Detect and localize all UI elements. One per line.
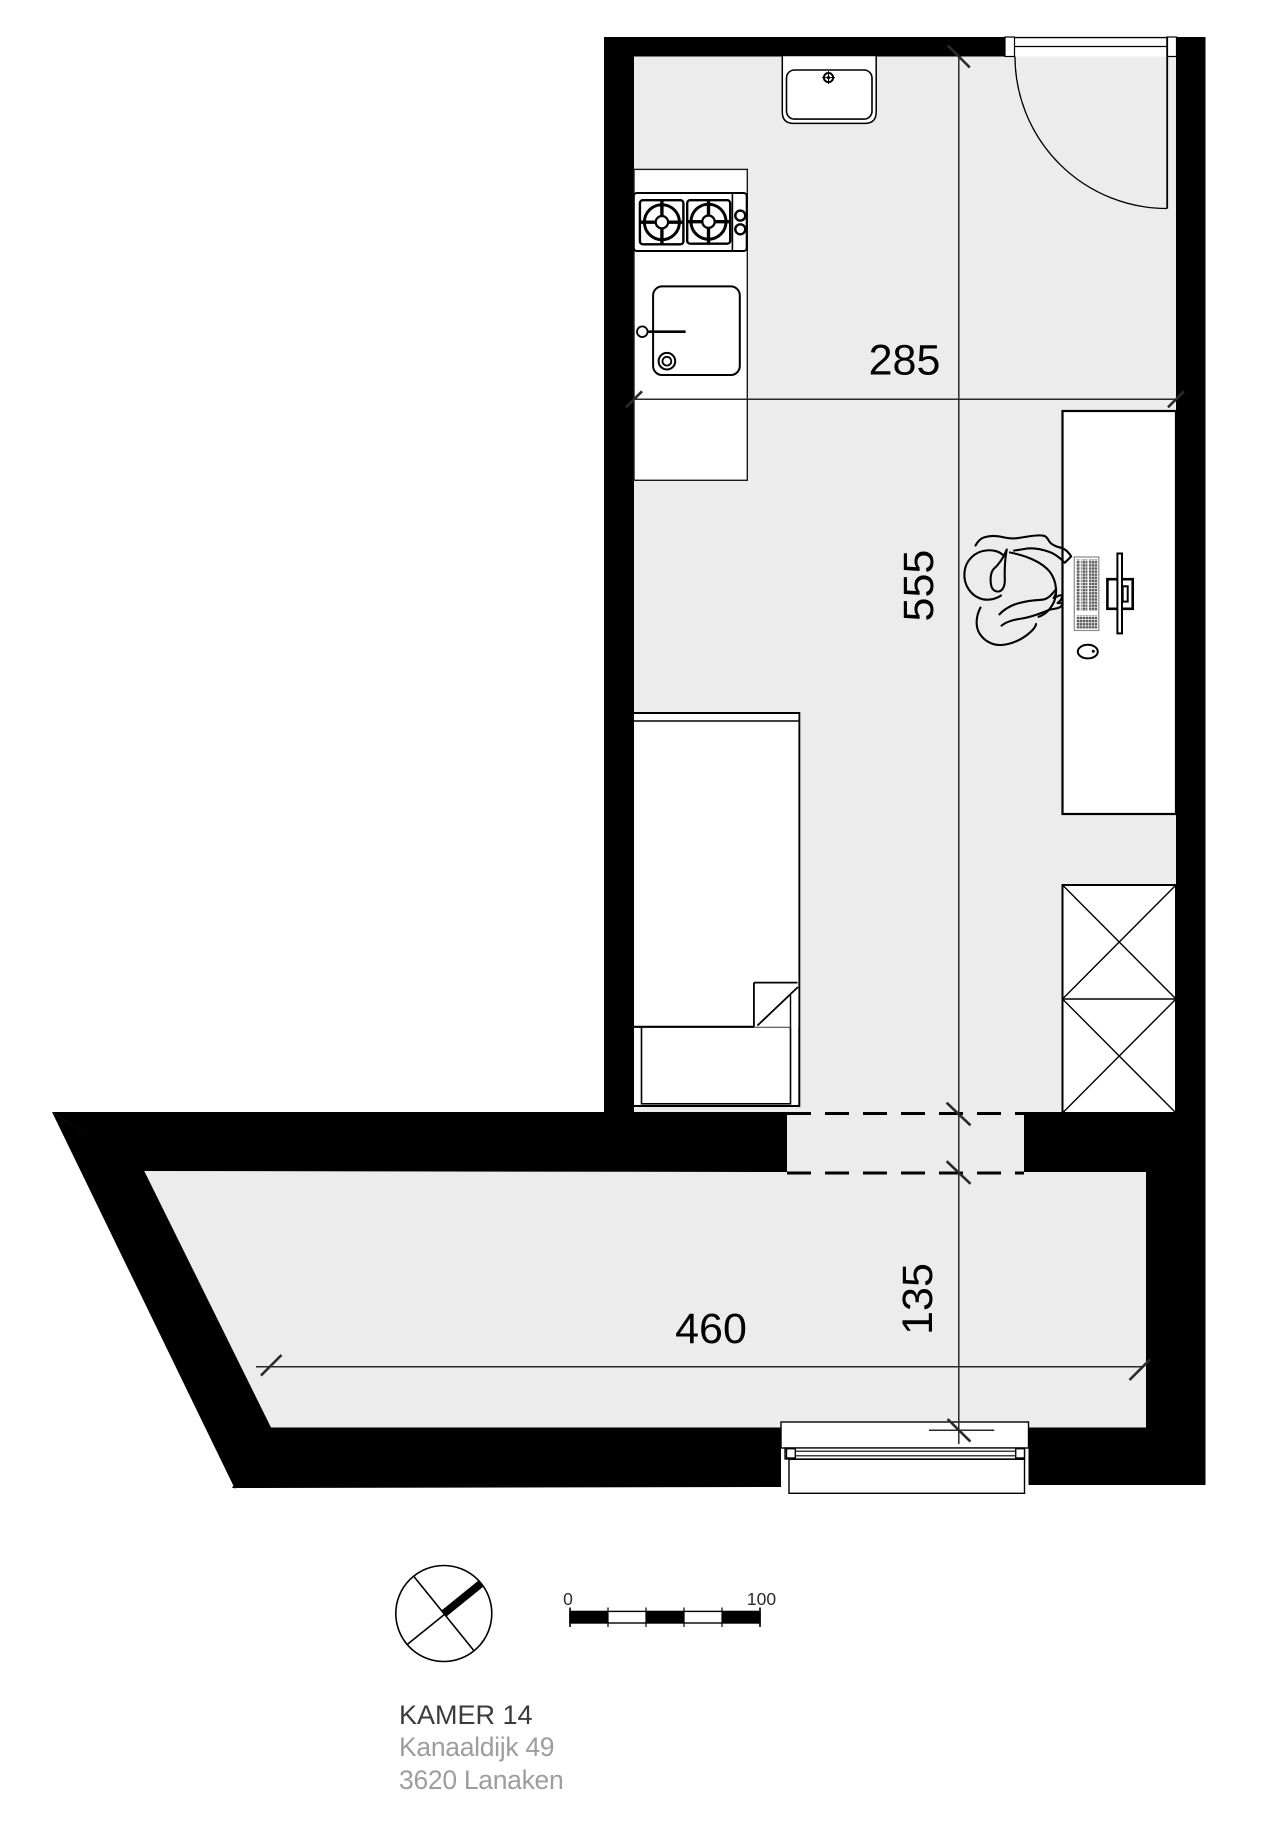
- svg-text:460: 460: [675, 1305, 747, 1353]
- svg-text:135: 135: [894, 1263, 942, 1335]
- svg-text:285: 285: [869, 337, 941, 385]
- svg-text:555: 555: [895, 550, 943, 622]
- svg-text:0: 0: [563, 1589, 573, 1609]
- svg-text:100: 100: [747, 1589, 776, 1609]
- svg-text:Kanaaldijk 49: Kanaaldijk 49: [399, 1732, 554, 1762]
- svg-text:KAMER 14: KAMER 14: [399, 1700, 533, 1730]
- svg-text:3620 Lanaken: 3620 Lanaken: [399, 1765, 563, 1795]
